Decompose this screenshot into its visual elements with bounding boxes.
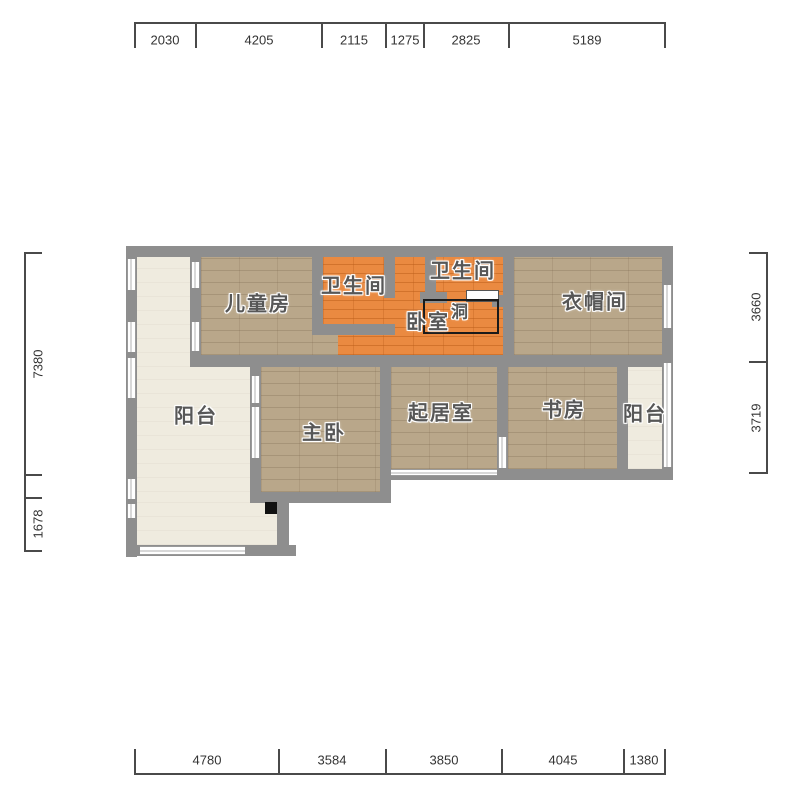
dim-label-bottom: 3850 [430,753,459,768]
room-label-bathroom-2: 卫生间 [430,255,496,284]
floorplan-canvas: 2030 4205 2115 1275 2825 5189 4780 3584 … [0,0,800,800]
room-label-bathroom-1: 卫生间 [321,270,387,299]
ruler-tick [508,22,510,48]
ruler-bottom-line [135,773,665,775]
ruler-tick [195,22,197,48]
ruler-tick [134,749,136,775]
floor-balcony-left-mid [137,367,250,492]
window-balcony-bottom [140,546,245,555]
ruler-tick [24,252,42,254]
room-label-bedroom: 卧室 [406,306,450,335]
window-living-bottom [391,469,497,476]
ruler-tick [623,749,625,775]
window-left-1 [127,259,136,290]
ruler-tick [24,474,42,476]
dim-label-right: 3660 [749,293,764,322]
room-label-balcony-right: 阳台 [623,398,667,427]
dim-label-left: 7380 [31,350,46,379]
window-cloakroom-right [663,285,672,328]
room-label-hole: 洞 [451,298,469,323]
door-living-study [498,437,507,468]
room-label-balcony-left: 阳台 [174,400,218,429]
room-label-master-bedroom: 主卧 [302,417,346,446]
dim-label-top: 1275 [391,33,420,48]
dim-label-top: 2115 [340,33,368,48]
ruler-tick [664,749,666,775]
dim-label-bottom: 4045 [549,753,578,768]
ruler-tick [664,22,666,48]
ruler-tick [134,22,136,48]
ruler-right-line [766,252,768,474]
ruler-tick [749,361,767,363]
wall-middle [190,355,673,367]
window-left-2 [127,322,136,352]
column-marker [265,502,277,514]
dim-label-bottom: 4780 [193,753,222,768]
ruler-tick [385,22,387,48]
window-children-2 [191,322,200,351]
ruler-tick [749,252,767,254]
dim-label-top: 4205 [245,33,274,48]
ruler-tick [501,749,503,775]
ruler-tick [423,22,425,48]
wall-bath1-bottom [312,324,395,335]
window-master-balcony-2 [251,407,260,458]
window-left-4 [127,479,136,499]
window-left-3 [127,358,136,398]
ruler-tick [321,22,323,48]
dim-label-right: 3719 [749,404,764,433]
dim-label-bottom: 3584 [318,753,347,768]
floor-nook [312,335,338,355]
floor-balcony-left-top [137,257,190,367]
room-label-children-room: 儿童房 [225,288,291,317]
dim-label-left: 1678 [31,510,46,539]
ruler-top-line [135,22,665,24]
dim-label-bottom: 1380 [630,753,659,768]
ruler-left-line [24,253,26,551]
ruler-tick [278,749,280,775]
window-left-5 [127,504,136,518]
room-label-living-room: 起居室 [408,397,474,426]
wall-balcony-right-low [277,492,289,556]
ruler-tick [385,749,387,775]
dim-label-top: 2825 [452,33,481,48]
room-label-study: 书房 [542,394,586,423]
room-label-cloakroom: 衣帽间 [562,286,628,315]
window-children-1 [191,262,200,288]
dim-label-top: 2030 [151,33,180,48]
ruler-tick [24,497,42,499]
wall-master-living [380,355,391,503]
wall-top [126,246,673,257]
dim-label-top: 5189 [573,33,602,48]
window-master-balcony-1 [251,376,260,403]
ruler-tick [749,472,767,474]
ruler-tick [24,550,42,552]
